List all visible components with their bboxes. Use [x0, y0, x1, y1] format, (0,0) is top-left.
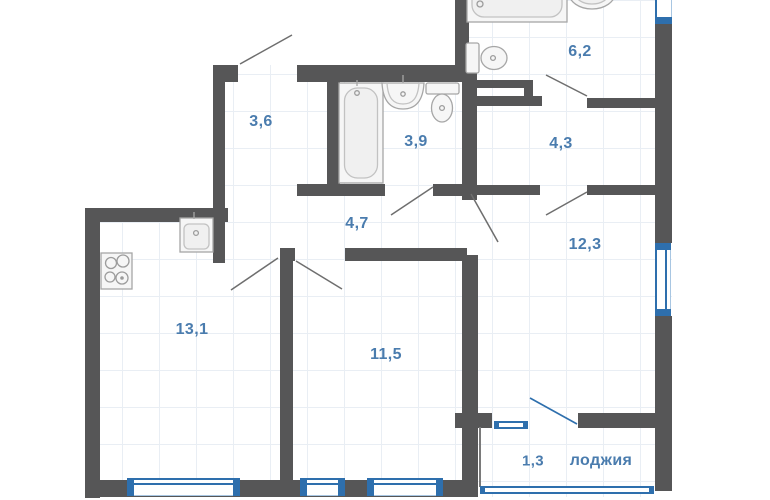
window-room123	[655, 243, 671, 316]
room-label-kitchen: 13,1	[176, 321, 209, 339]
outside-area	[0, 0, 455, 65]
loggia-edge-line	[479, 427, 481, 487]
window-loggia-glazing	[480, 486, 654, 494]
window-cap	[233, 479, 240, 496]
window-cap	[338, 479, 345, 496]
outside-area	[0, 65, 213, 208]
wall-duct-bottom	[468, 96, 542, 106]
wall-loggia-right	[578, 413, 655, 428]
wall-room115-room123	[462, 255, 478, 480]
window-glass-line	[665, 243, 667, 316]
window-cap	[367, 479, 374, 496]
wall-kitchen-room115	[280, 255, 293, 480]
wall-hall-room123-right	[587, 185, 655, 195]
wall-exterior-right-upper	[655, 23, 672, 243]
window-balcony-sill	[494, 421, 528, 429]
window-cap	[656, 309, 671, 316]
window-kitchen	[127, 478, 240, 496]
room-label-loggia-area: 1,3	[522, 453, 544, 470]
window-cap	[494, 421, 499, 429]
wall-wardrobe-left	[213, 67, 225, 263]
wall-bathroom-bottom-left	[297, 184, 385, 196]
wall-hall-room123-left	[470, 185, 540, 195]
room-label-wardrobe: 3,6	[249, 113, 272, 131]
window-cap	[480, 486, 485, 494]
wall-kitchen-top	[85, 208, 228, 222]
wall-exterior-right-lower	[655, 316, 672, 491]
room-label-room115: 11,5	[370, 346, 402, 364]
window-cap	[523, 421, 528, 429]
room-label-room123: 12,3	[569, 236, 602, 254]
floor-plan: 3,6 3,9 6,2 4,3 4,7 12,3 13,1 11,5 1,3 л…	[0, 0, 770, 500]
wall-room62-hall	[587, 98, 655, 108]
window-glass-line	[127, 483, 240, 485]
wall-bathroom-top	[297, 65, 468, 82]
wall-wardrobe-bathroom	[327, 80, 340, 185]
wall-room115-top	[345, 248, 467, 261]
window-cap	[649, 486, 654, 494]
window-cap	[300, 479, 307, 496]
window-cap	[656, 17, 672, 24]
wall-loggia-stub	[455, 413, 492, 428]
window-cap	[656, 243, 671, 250]
room-label-bathroom: 3,9	[404, 133, 427, 151]
room-label-bathroom-top: 6,2	[568, 43, 591, 61]
window-room115-large	[367, 478, 443, 496]
window-cap	[127, 479, 134, 496]
room-label-hallway: 4,3	[549, 135, 572, 153]
room-label-loggia-name: лоджия	[570, 452, 633, 470]
window-top-right	[655, 0, 672, 24]
window-cap	[436, 479, 443, 496]
window-room115-small	[300, 478, 345, 496]
room-label-corridor: 4,7	[345, 215, 368, 233]
wall-exterior-left	[85, 208, 100, 498]
window-glass-line	[367, 483, 443, 485]
